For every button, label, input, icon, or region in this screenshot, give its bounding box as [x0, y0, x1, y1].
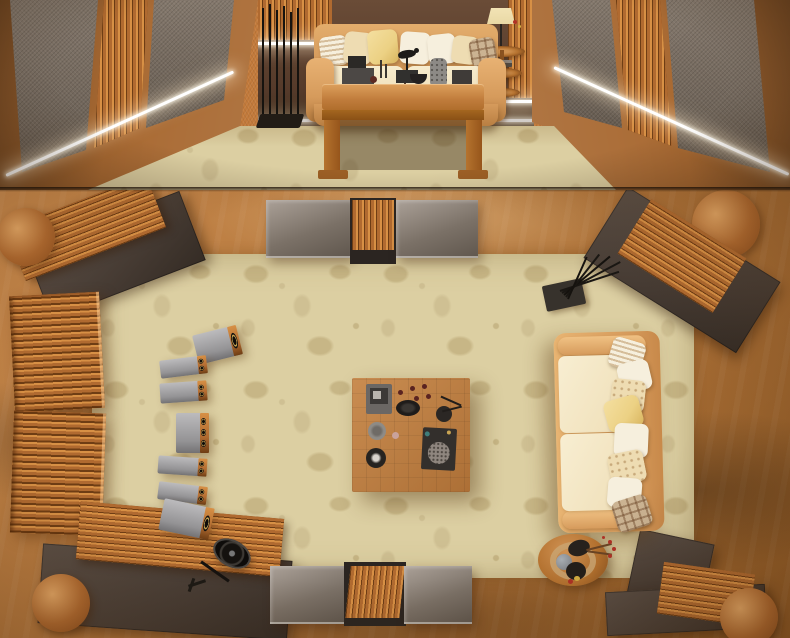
pv-panel-top [266, 198, 478, 264]
table-foot [318, 170, 348, 179]
decor-box [342, 68, 374, 84]
rack-rod [276, 10, 278, 122]
front-view [0, 0, 790, 190]
render-canvas [0, 0, 790, 638]
decor-dot [425, 431, 430, 436]
pillow-yellow [367, 29, 400, 65]
fv-floor-rack [260, 4, 304, 132]
rack-rod [262, 8, 264, 120]
diffuser-slats [9, 292, 105, 413]
pv-fan [184, 538, 262, 604]
speaker-center-channel [176, 413, 208, 453]
slat-diffuser [345, 566, 404, 618]
decor-gray-bowl [368, 422, 386, 440]
fan-head [208, 532, 256, 575]
textured-vase-top [427, 441, 450, 464]
decor-box [452, 70, 472, 84]
flower-dot [608, 540, 612, 544]
candlestick [385, 64, 387, 78]
fv-acoustic-panel [532, 0, 632, 140]
decor-pink-dish [392, 432, 399, 439]
pv-coat-stand [538, 250, 648, 320]
rack-rod [290, 12, 292, 124]
decor-cup [398, 390, 403, 395]
acoustic-panel-gray [396, 200, 478, 258]
device-key [373, 391, 381, 399]
view-divider [0, 187, 790, 192]
corner-copper-cap [32, 574, 90, 632]
plan-view [0, 190, 790, 638]
speaker-small [159, 380, 206, 403]
decor-cup [426, 394, 431, 399]
rack-base [256, 114, 305, 128]
flower-dot [513, 20, 517, 24]
flower-dot [612, 547, 616, 551]
pv-coffee-table [352, 378, 470, 492]
decor-dot [568, 579, 573, 584]
table-leg [466, 120, 482, 172]
flower-dot [602, 536, 605, 539]
decor-black-bowl [396, 400, 420, 416]
speaker-driver [201, 440, 206, 447]
decor-dot [447, 430, 451, 434]
candlestick [380, 60, 382, 78]
pv-side-table [538, 532, 618, 588]
flower-dot [608, 554, 612, 558]
speaker-baffle [197, 380, 207, 401]
table-under-shadow [340, 120, 466, 170]
speaker-small [159, 355, 207, 378]
decor-cup-bowl [366, 448, 386, 468]
textured-vase [430, 58, 447, 86]
table-foot [458, 170, 488, 179]
decor-cup [414, 396, 419, 401]
acoustic-panel-gray [404, 566, 472, 624]
bird-head [414, 48, 419, 53]
acoustic-panel-gray [266, 200, 350, 258]
table-apron [322, 110, 484, 120]
speaker-driver [201, 429, 206, 436]
rack-rod [269, 4, 271, 116]
decor-box [348, 56, 366, 68]
decor-device [366, 384, 392, 414]
decor-cup [370, 76, 377, 83]
pv-panel-bottom [270, 562, 474, 628]
flower-dot [518, 25, 521, 28]
rack-rod [297, 8, 299, 120]
speaker-driver [201, 418, 206, 425]
fv-coffee-table [322, 82, 484, 180]
pv-corner-bottom-right [600, 530, 790, 638]
sculpture-wing [441, 396, 462, 407]
pv-speaker-array [150, 320, 260, 550]
pv-sofa [553, 331, 664, 534]
acoustic-panel-gray [270, 566, 346, 624]
corner-copper-cap [720, 588, 778, 638]
pv-left-diffuser [9, 292, 105, 413]
decor-cup [422, 384, 427, 389]
decor-cup [410, 386, 415, 391]
decor-tray [421, 427, 457, 471]
fv-led-back-right [502, 100, 536, 103]
rack-rod [283, 6, 285, 118]
table-top [322, 84, 484, 110]
table-leg [324, 120, 340, 172]
speaker-small [157, 455, 206, 476]
slat-diffuser [352, 200, 394, 250]
decor-dot [574, 576, 580, 581]
